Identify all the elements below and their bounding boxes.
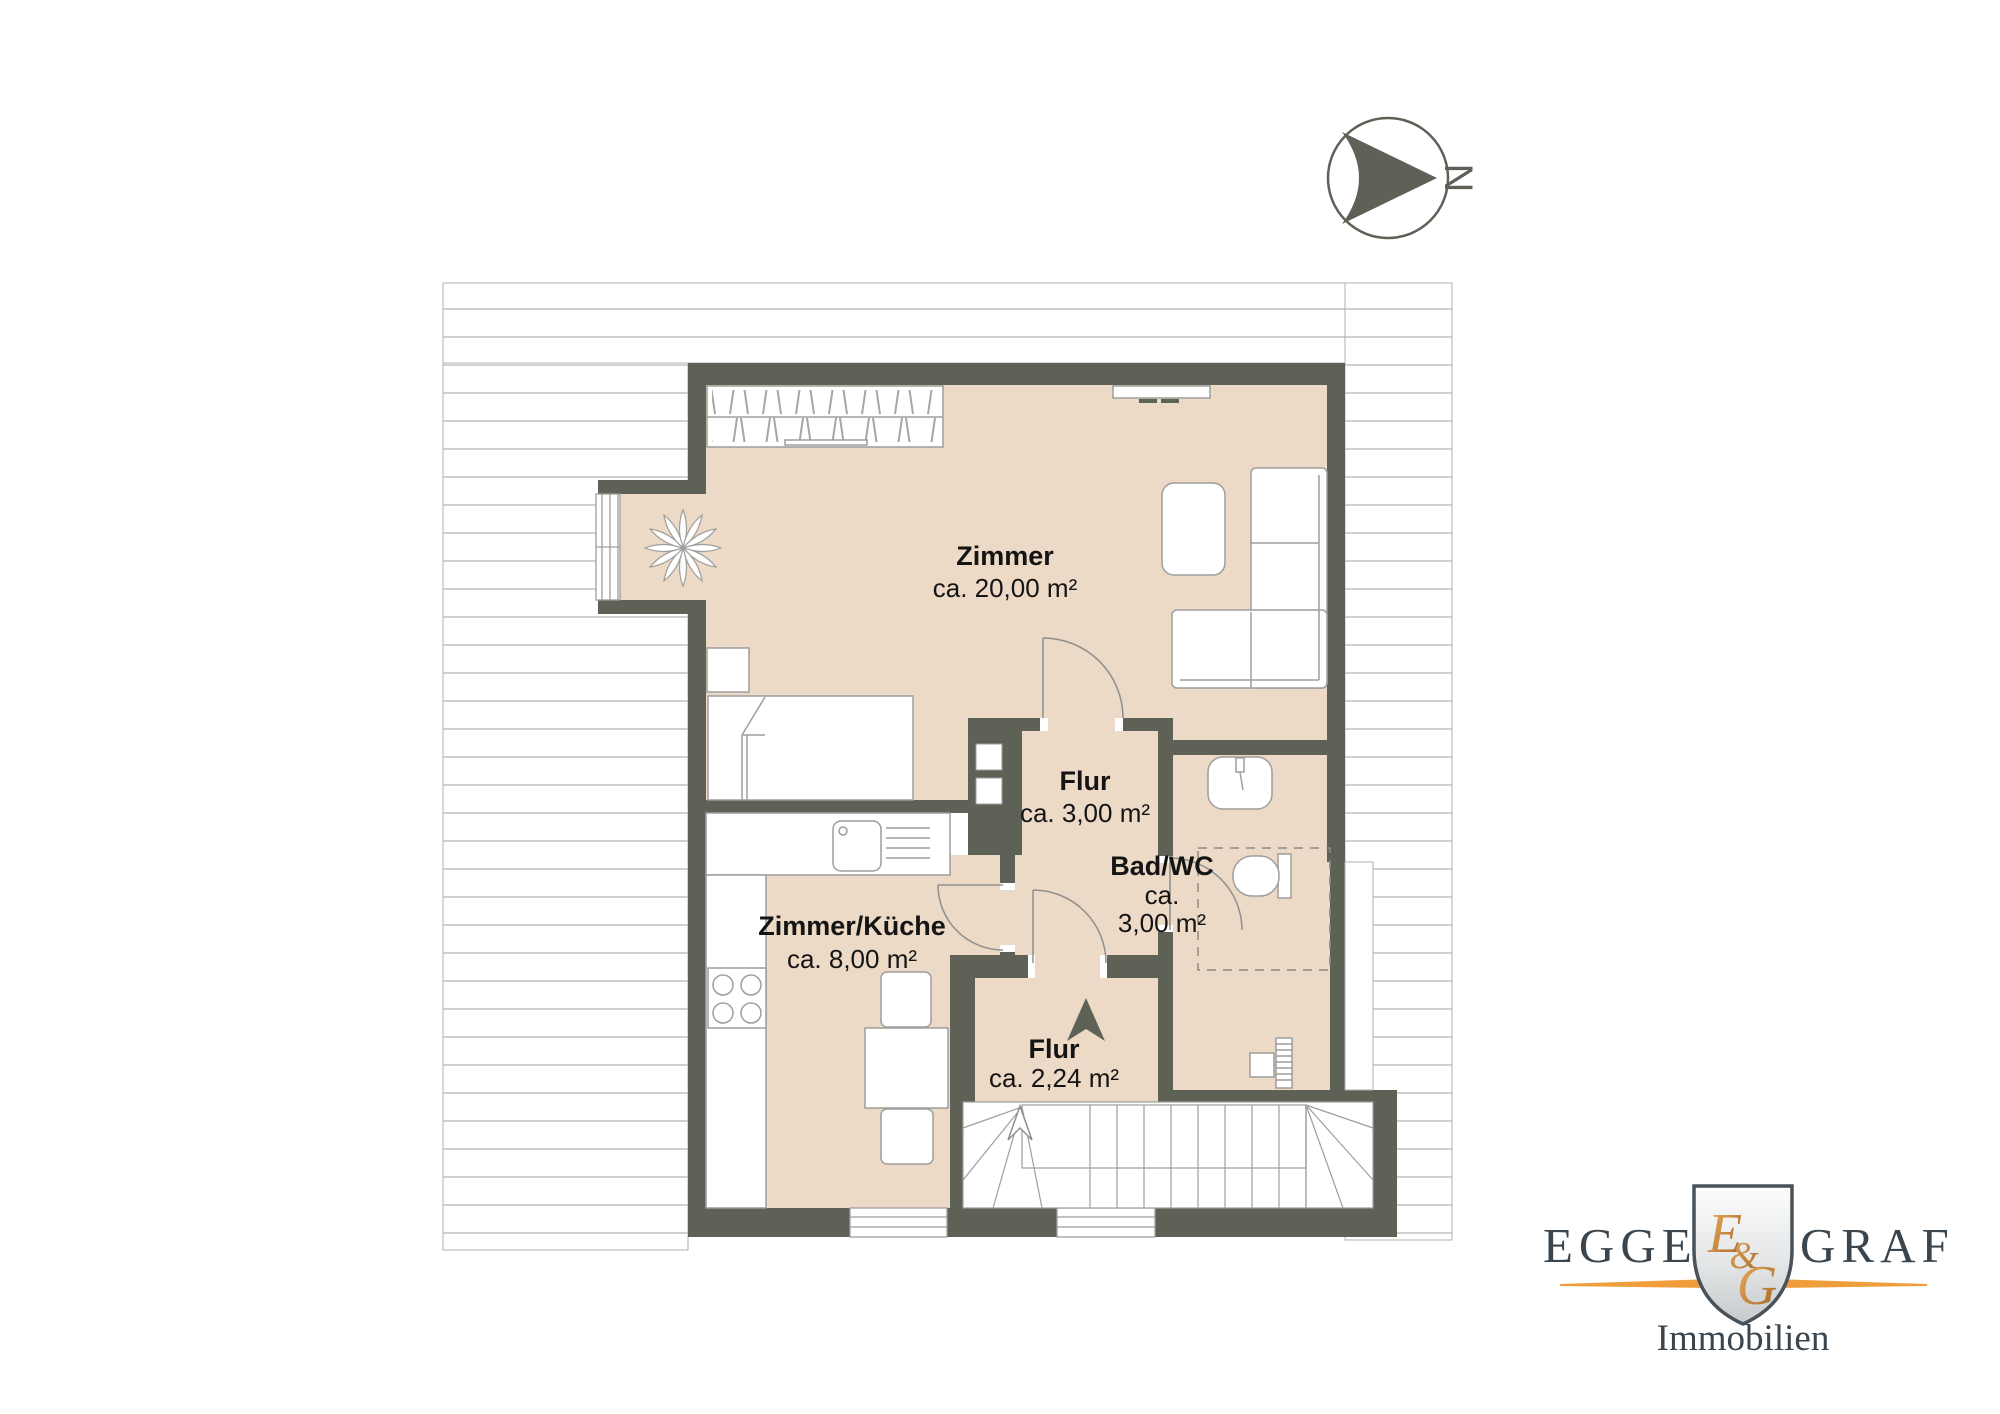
bed xyxy=(708,696,913,800)
wall-niche-top xyxy=(598,480,706,494)
flur2-area: ca. 2,24 m² xyxy=(989,1063,1119,1093)
wall-zimmer-kueche xyxy=(688,800,968,813)
floor-flur-door-gap xyxy=(1030,955,1105,978)
wall-bad-top xyxy=(1173,740,1345,755)
wall-left-upper xyxy=(688,385,706,480)
zimmer-name: Zimmer xyxy=(956,541,1054,571)
compass: N xyxy=(1328,118,1480,238)
wall-flur2-right-upper xyxy=(1158,731,1173,858)
kueche-area: ca. 8,00 m² xyxy=(787,944,917,974)
kitchen-counter-top xyxy=(706,813,950,875)
kueche-window xyxy=(850,1208,947,1237)
kitchen-counter-left xyxy=(706,875,766,1208)
wall-stairs-right xyxy=(1373,1090,1397,1208)
wall-flur2-right-lower xyxy=(1158,930,1173,1090)
stairs-window xyxy=(1057,1208,1155,1237)
wall-bad-right xyxy=(1330,862,1345,1090)
logo-monogram-g: G xyxy=(1737,1255,1777,1317)
flur-name: Flur xyxy=(1060,766,1111,796)
bad-name: Bad/WC xyxy=(1110,851,1214,881)
shaft-opening-1 xyxy=(976,744,1002,770)
logo-accent-line-right xyxy=(1774,1279,1927,1288)
wall-right-upper xyxy=(1327,363,1345,862)
kueche-name: Zimmer/Küche xyxy=(758,911,946,941)
niche-window xyxy=(596,494,620,600)
wardrobe xyxy=(707,386,943,447)
coffee-table xyxy=(1162,483,1225,575)
wall-flur-bottom-a xyxy=(950,955,1030,978)
wall-top xyxy=(688,363,1345,385)
toilet xyxy=(1233,854,1291,898)
floor-zimmer-door-gap xyxy=(1040,718,1123,731)
storage-void xyxy=(1345,862,1373,1090)
chair-bottom xyxy=(881,1109,933,1164)
flur2-name: Flur xyxy=(1029,1034,1080,1064)
logo: EGGER GRAF E & G Immobilien xyxy=(1543,1186,1955,1359)
wall-flur-left xyxy=(1000,855,1015,885)
chair-top xyxy=(881,972,931,1027)
stove xyxy=(708,968,766,1028)
logo-subtitle: Immobilien xyxy=(1657,1318,1830,1359)
bad-area-1: ca. xyxy=(1145,880,1180,910)
nightstand xyxy=(707,648,749,692)
wall-flur-top-b xyxy=(1123,718,1173,731)
roof-hatch-top xyxy=(443,283,1345,363)
bath-sink xyxy=(1208,757,1272,809)
logo-accent-line-left xyxy=(1560,1279,1713,1288)
wall-flur-bottom-b xyxy=(1105,955,1158,978)
wall-niche-bottom xyxy=(598,600,706,614)
floor-plan-page: Zimmer ca. 20,00 m² Flur ca. 3,00 m² Bad… xyxy=(0,0,2000,1414)
staircase xyxy=(963,1102,1373,1208)
zimmer-area: ca. 20,00 m² xyxy=(933,573,1078,603)
floor-kueche-door-gap xyxy=(1000,885,1015,950)
wall-flur-top-a xyxy=(968,718,1040,731)
compass-north-arrow-icon xyxy=(1342,132,1437,224)
shaft-opening-2 xyxy=(976,778,1002,804)
wall-bottom xyxy=(688,1208,1397,1237)
wall-left-main xyxy=(688,614,706,1237)
flur-area: ca. 3,00 m² xyxy=(1020,798,1150,828)
floor-zimmer-lower-right xyxy=(1173,718,1327,740)
dining-table xyxy=(865,1028,948,1108)
logo-shield-icon: E & G xyxy=(1694,1186,1792,1324)
compass-north-label: N xyxy=(1436,164,1480,193)
logo-word-right: GRAF xyxy=(1800,1218,1955,1273)
bad-area-2: 3,00 m² xyxy=(1118,908,1206,938)
